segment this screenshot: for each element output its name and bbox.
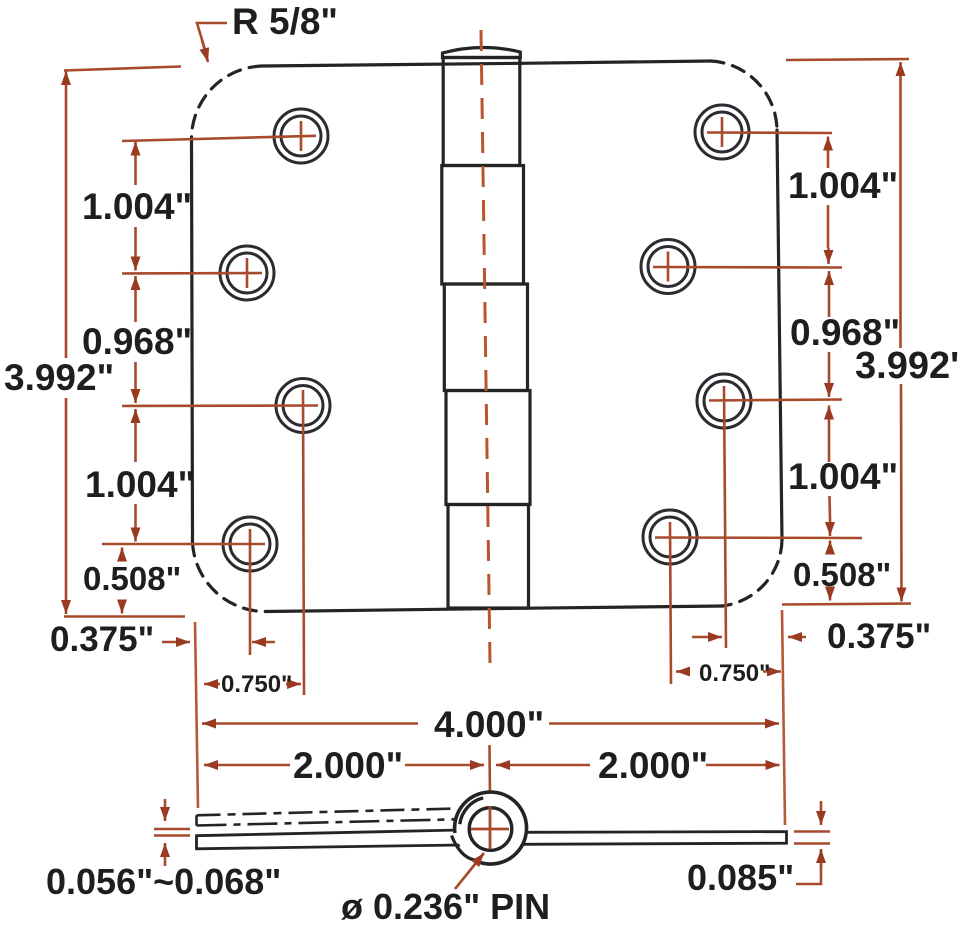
svg-text:0.056"~0.068": 0.056"~0.068" — [46, 861, 281, 902]
svg-text:0.508": 0.508" — [793, 556, 891, 593]
svg-text:0.375": 0.375" — [827, 617, 931, 656]
svg-text:0.508": 0.508" — [83, 560, 181, 597]
svg-text:1.004": 1.004" — [82, 186, 192, 227]
svg-text:0.968": 0.968" — [790, 312, 900, 353]
svg-text:2.000": 2.000" — [598, 745, 708, 786]
svg-text:0.750": 0.750" — [699, 660, 770, 687]
svg-text:0.085": 0.085" — [687, 857, 794, 898]
svg-text:3.992": 3.992" — [4, 357, 114, 398]
svg-text:ø 0.236" PIN: ø 0.236" PIN — [341, 886, 550, 926]
svg-text:0.750": 0.750" — [221, 671, 292, 698]
svg-text:4.000": 4.000" — [434, 704, 544, 745]
svg-text:1.004": 1.004" — [788, 165, 898, 206]
svg-text:2.000": 2.000" — [293, 745, 403, 786]
svg-text:R 5/8": R 5/8" — [232, 1, 338, 42]
svg-text:0.968": 0.968" — [82, 321, 192, 362]
svg-text:1.004": 1.004" — [788, 456, 898, 497]
svg-text:1.004": 1.004" — [85, 464, 195, 505]
svg-text:0.375": 0.375" — [50, 620, 154, 659]
